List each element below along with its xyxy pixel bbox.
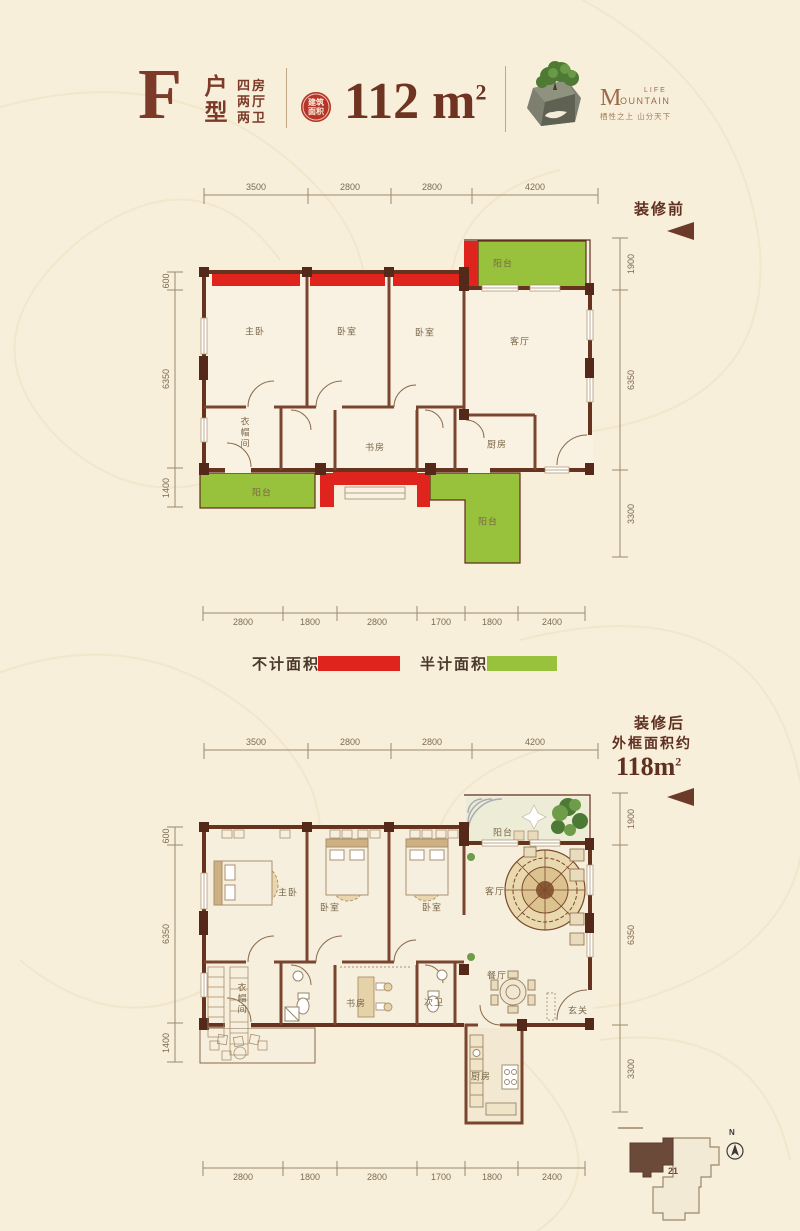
unit-type-label: 户型 bbox=[201, 74, 225, 131]
dim-label: 2800 bbox=[422, 737, 442, 747]
dim-label: 600 bbox=[161, 273, 171, 288]
brand-initial: M bbox=[600, 86, 621, 110]
spec-line-1: 四房 bbox=[237, 78, 267, 94]
dim-label: 3500 bbox=[246, 182, 266, 192]
room-label-balcony: 阳台 bbox=[478, 515, 498, 528]
floorplan-poster: F 户型 四房 两厅 两卫 建筑 面积 112 m2 M LIFE bbox=[0, 0, 800, 1231]
dim-label: 2800 bbox=[233, 1172, 253, 1182]
room-label-bath2: 次卫 bbox=[424, 996, 444, 1009]
spec-line-3: 两卫 bbox=[237, 110, 267, 126]
dim-label: 6350 bbox=[626, 925, 636, 945]
dim-label: 1900 bbox=[626, 809, 636, 829]
room-label-bedroom: 卧室 bbox=[320, 901, 340, 914]
dim-label: 1900 bbox=[626, 254, 636, 274]
dim-label: 2800 bbox=[340, 182, 360, 192]
site-key-plan bbox=[615, 1125, 795, 1230]
dim-label: 4200 bbox=[525, 182, 545, 192]
dim-label: 2400 bbox=[542, 617, 562, 627]
room-label-balcony: 阳台 bbox=[493, 257, 513, 270]
room-label-cloak: 衣帽间 bbox=[239, 417, 252, 450]
room-label-bedroom: 卧室 bbox=[337, 325, 357, 338]
header-divider-2 bbox=[505, 66, 506, 132]
north-label: N bbox=[729, 1128, 735, 1137]
dim-label: 1700 bbox=[431, 1172, 451, 1182]
dim-label: 1800 bbox=[300, 1172, 320, 1182]
legend-not-counted-swatch bbox=[318, 656, 400, 671]
dim-label: 2800 bbox=[340, 737, 360, 747]
legend-half-counted-swatch bbox=[487, 656, 557, 671]
dim-label: 2800 bbox=[367, 617, 387, 627]
building-area-badge: 建筑 面积 bbox=[301, 92, 331, 122]
area-value: 112 m2 bbox=[344, 76, 486, 128]
brand-tagline: 栖性之上 山分天下 bbox=[600, 111, 710, 122]
dim-label: 1400 bbox=[161, 1033, 171, 1053]
room-label-dining: 餐厅 bbox=[487, 969, 507, 982]
unit-type-letter: F bbox=[138, 58, 182, 130]
dim-label: 6350 bbox=[161, 369, 171, 389]
room-label-bedroom: 卧室 bbox=[422, 901, 442, 914]
room-label-master: 主卧 bbox=[245, 325, 265, 338]
room-label-living: 客厅 bbox=[485, 885, 505, 898]
unit-type-label-text: 户型 bbox=[201, 74, 226, 126]
room-label-bedroom: 卧室 bbox=[415, 326, 435, 339]
dim-label: 6350 bbox=[626, 370, 636, 390]
brand-block: M LIFE OUNTAIN 栖性之上 山分天下 bbox=[600, 86, 710, 122]
dim-label: 2800 bbox=[367, 1172, 387, 1182]
dim-label: 3300 bbox=[626, 1059, 636, 1079]
unit-spec: 四房 两厅 两卫 bbox=[237, 78, 267, 126]
site-unit-number: 21 bbox=[668, 1166, 678, 1176]
dim-label: 2800 bbox=[422, 182, 442, 192]
plan-after-tag-line1: 装修后 bbox=[634, 712, 685, 733]
room-label-kitchen: 厨房 bbox=[487, 438, 507, 451]
bonsai-cube-logo-icon bbox=[515, 60, 595, 132]
dim-label: 3500 bbox=[246, 737, 266, 747]
dim-label: 3300 bbox=[626, 504, 636, 524]
dim-label: 1400 bbox=[161, 478, 171, 498]
dim-label: 2800 bbox=[233, 617, 253, 627]
north-arrow-icon bbox=[727, 1143, 743, 1159]
room-label-foyer: 玄关 bbox=[568, 1004, 588, 1017]
room-label-kitchen: 厨房 bbox=[471, 1070, 491, 1083]
dim-label: 4200 bbox=[525, 737, 545, 747]
room-label-balcony: 阳台 bbox=[252, 486, 272, 499]
room-label-balcony: 阳台 bbox=[493, 826, 513, 839]
brand-mountain: OUNTAIN bbox=[620, 96, 670, 106]
badge-line-1: 建筑 bbox=[308, 98, 324, 107]
legend-half-counted-label: 半计面积 bbox=[420, 653, 488, 674]
floor-plan-before-drawing bbox=[130, 180, 710, 640]
badge-line-2: 面积 bbox=[308, 107, 324, 116]
room-label-living: 客厅 bbox=[510, 335, 530, 348]
dim-label: 2400 bbox=[542, 1172, 562, 1182]
dim-label: 600 bbox=[161, 828, 171, 843]
header-divider-1 bbox=[286, 68, 287, 128]
dim-label: 1800 bbox=[300, 617, 320, 627]
brand-life: LIFE bbox=[644, 87, 667, 94]
room-label-study: 书房 bbox=[346, 997, 366, 1010]
room-label-study: 书房 bbox=[365, 441, 385, 454]
room-label-master: 主卧 bbox=[278, 886, 298, 899]
area-sup: 2 bbox=[475, 80, 486, 105]
dim-label: 1700 bbox=[431, 617, 451, 627]
area-value-text: 112 m bbox=[344, 73, 475, 130]
room-label-cloak: 衣帽间 bbox=[236, 983, 249, 1016]
dim-label: 6350 bbox=[161, 924, 171, 944]
dim-label: 1800 bbox=[482, 617, 502, 627]
legend-not-counted-label: 不计面积 bbox=[252, 653, 320, 674]
dim-label: 1800 bbox=[482, 1172, 502, 1182]
spec-line-2: 两厅 bbox=[237, 94, 267, 110]
